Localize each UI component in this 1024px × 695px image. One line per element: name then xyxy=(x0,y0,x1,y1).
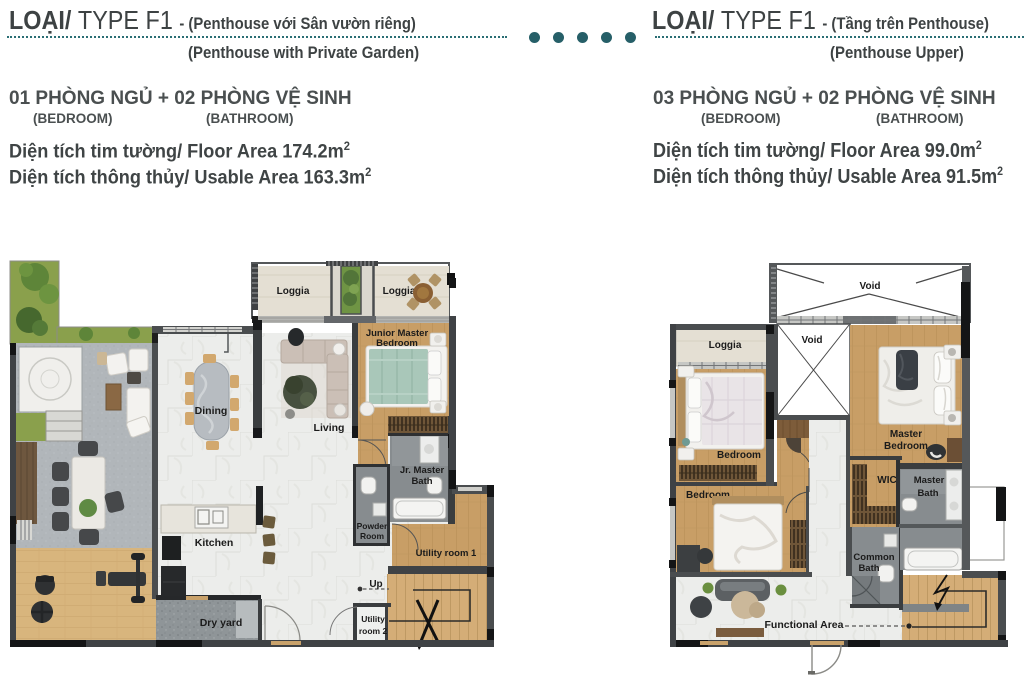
svg-text:Bedroom: Bedroom xyxy=(717,450,761,461)
svg-text:Utility room 1: Utility room 1 xyxy=(416,548,477,559)
svg-text:Functional Area: Functional Area xyxy=(765,619,844,631)
svg-text:Dry yard: Dry yard xyxy=(200,617,243,629)
svg-text:Dining: Dining xyxy=(195,405,228,417)
svg-text:Jr. Master: Jr. Master xyxy=(400,465,445,476)
svg-text:Living: Living xyxy=(314,422,345,434)
svg-text:Loggia: Loggia xyxy=(383,286,416,297)
svg-text:Void: Void xyxy=(860,281,881,292)
svg-text:Room: Room xyxy=(360,531,385,541)
svg-text:room 2: room 2 xyxy=(359,626,388,636)
svg-text:Powder: Powder xyxy=(357,521,388,531)
svg-text:Bath: Bath xyxy=(411,476,432,487)
svg-text:Master: Master xyxy=(914,475,945,486)
svg-text:Bedroom: Bedroom xyxy=(376,338,418,349)
svg-text:Master: Master xyxy=(890,429,922,440)
svg-text:Loggia: Loggia xyxy=(277,286,310,297)
svg-text:Up: Up xyxy=(369,579,382,590)
svg-text:Loggia: Loggia xyxy=(709,340,742,351)
svg-text:Bedroom: Bedroom xyxy=(884,441,928,452)
svg-text:Bath: Bath xyxy=(858,563,879,574)
svg-text:Common: Common xyxy=(853,552,894,563)
svg-text:Utility: Utility xyxy=(361,614,385,624)
svg-text:Void: Void xyxy=(802,335,823,346)
svg-text:Kitchen: Kitchen xyxy=(195,537,234,549)
svg-text:Bath: Bath xyxy=(917,488,938,499)
svg-text:WIC: WIC xyxy=(877,475,896,486)
